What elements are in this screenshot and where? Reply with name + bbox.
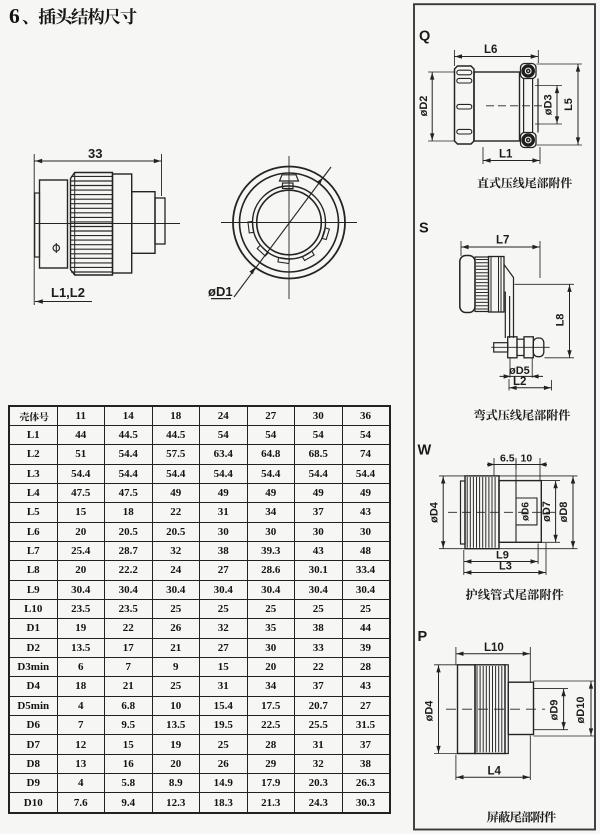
svg-text:W: W	[418, 443, 432, 459]
svg-text:øD4: øD4	[424, 700, 436, 722]
svg-text:L4: L4	[488, 766, 502, 778]
svg-text:øD2: øD2	[418, 96, 430, 117]
svg-text:L5: L5	[563, 98, 575, 111]
svg-text:øD4: øD4	[429, 501, 441, 523]
svg-text:33: 33	[88, 146, 102, 161]
svg-text:6.5: 6.5	[500, 453, 515, 465]
svg-text:øD6: øD6	[521, 502, 532, 521]
svg-text:6: 6	[9, 4, 20, 28]
svg-text:L1,L2: L1,L2	[51, 285, 85, 300]
svg-text:P: P	[418, 629, 428, 645]
svg-text:10: 10	[521, 453, 533, 465]
svg-text:L1: L1	[499, 149, 513, 161]
svg-text:L7: L7	[496, 235, 509, 247]
svg-text:L6: L6	[484, 44, 497, 56]
svg-text:Q: Q	[419, 28, 430, 44]
svg-text:L8: L8	[555, 314, 567, 327]
svg-text:øD9: øD9	[549, 700, 561, 721]
svg-text:øD8: øD8	[558, 502, 570, 523]
svg-text:L10: L10	[484, 642, 504, 654]
svg-text:S: S	[419, 221, 429, 237]
svg-text:øD1: øD1	[208, 284, 233, 299]
svg-text:L2: L2	[513, 376, 526, 388]
svg-text:L3: L3	[499, 561, 512, 573]
svg-text:øD3: øD3	[543, 94, 555, 115]
svg-text:øD10: øD10	[575, 697, 587, 724]
svg-text:øD7: øD7	[541, 501, 553, 522]
